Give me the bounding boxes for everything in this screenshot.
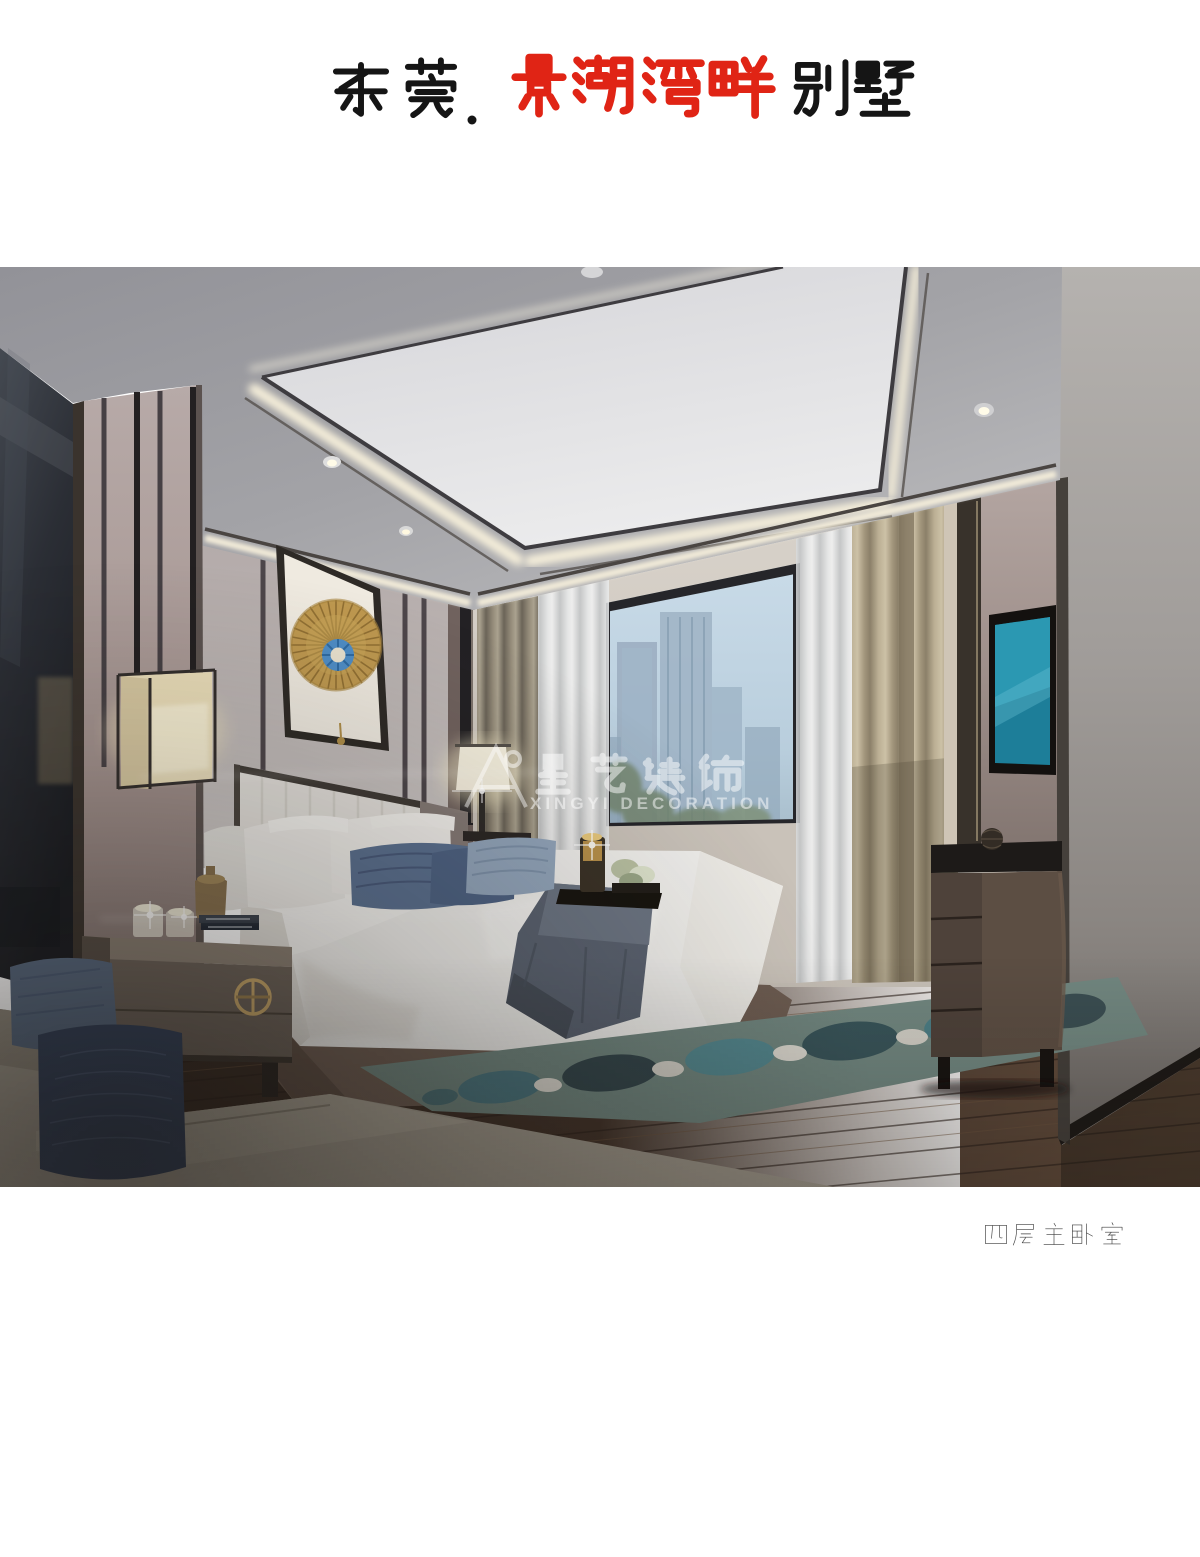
svg-text:XINGYI DECORATION: XINGYI DECORATION <box>530 794 773 813</box>
